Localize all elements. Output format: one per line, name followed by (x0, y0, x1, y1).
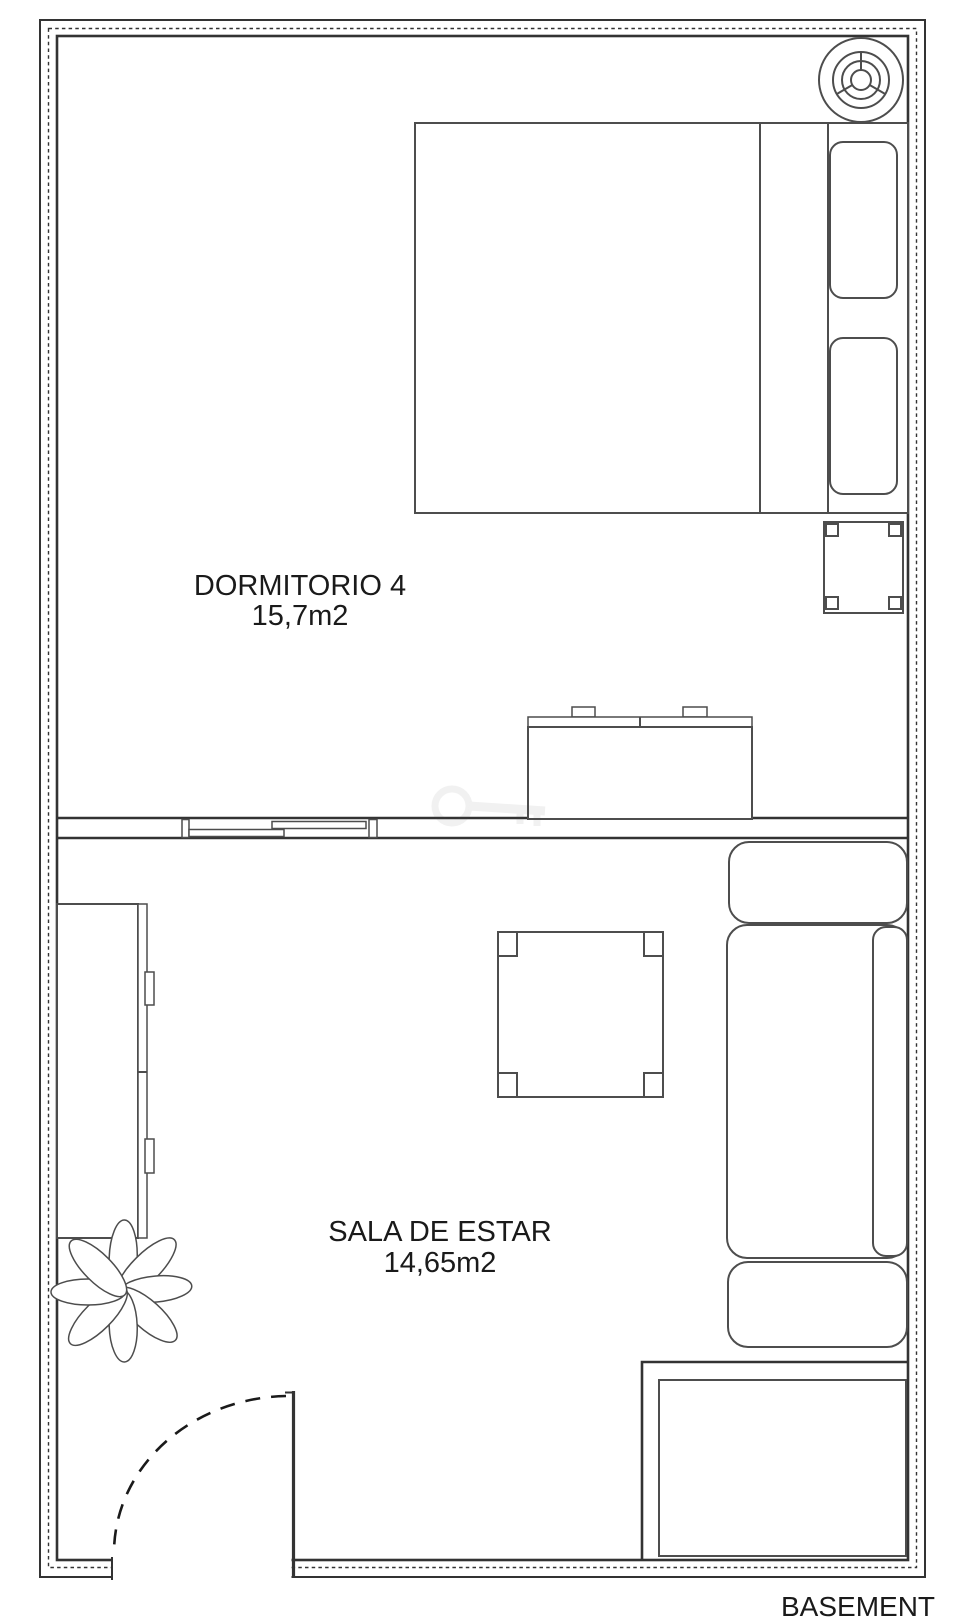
nightstand-leg (889, 597, 901, 609)
coffee-table-leg (644, 932, 663, 956)
coffee-table-leg (498, 932, 517, 956)
sideboard-handle (145, 972, 154, 1005)
floorplan-page: DORMITORIO 4 15,7m2 (0, 0, 953, 1623)
nightstand-leg (889, 524, 901, 536)
sliding-door (182, 820, 377, 838)
bed-pillow-bottom (830, 338, 897, 494)
dresser-body (528, 727, 752, 819)
door-swing-arc (114, 1396, 286, 1553)
coffee-table-leg (498, 1073, 517, 1097)
living-room-area-label: 14,65m2 (384, 1247, 497, 1279)
bedroom-name-label: DORMITORIO 4 (194, 570, 406, 602)
coffee-table-leg (644, 1073, 663, 1097)
sideboard-handle (145, 1139, 154, 1173)
double-bed (415, 123, 908, 513)
dresser (528, 707, 752, 819)
sliding-door-panel-upper (272, 822, 366, 829)
dividing-wall (57, 818, 908, 838)
nightstand (824, 522, 903, 613)
sliding-door-right-jamb (369, 820, 377, 838)
nightstand-leg (826, 597, 838, 609)
plant-petals (51, 1220, 193, 1363)
closet-inner-outline (659, 1380, 906, 1556)
coffee-table-top (498, 932, 663, 1097)
sofa-armrest-top (729, 842, 907, 923)
bedroom-area-label: 15,7m2 (252, 600, 349, 632)
living-room-sala-de-estar: SALA DE ESTAR 14,65m2 (51, 842, 908, 1583)
sliding-door-left-jamb (182, 820, 189, 838)
floor-caption: BASEMENT (781, 1591, 935, 1622)
closet-wall (642, 1362, 908, 1560)
ceiling-fan-icon (819, 38, 903, 122)
floorplan-canvas: DORMITORIO 4 15,7m2 (0, 0, 953, 1623)
entry-door (112, 1391, 294, 1583)
sofa-armrest-bottom (728, 1262, 907, 1347)
tv-sideboard (57, 904, 154, 1238)
storage-closet (642, 1362, 908, 1560)
dresser-handle (683, 707, 707, 717)
door-opening (113, 1551, 292, 1583)
sofa-backrest (873, 927, 907, 1256)
bed-pillow-top (830, 142, 897, 298)
living-room-name-label: SALA DE ESTAR (328, 1216, 552, 1248)
bedroom-dormitorio-4: DORMITORIO 4 15,7m2 (194, 38, 908, 826)
plant (51, 1220, 193, 1363)
sliding-door-panel-lower (189, 830, 284, 837)
coffee-table (498, 932, 663, 1097)
nightstand-leg (826, 524, 838, 536)
dresser-handle (572, 707, 595, 717)
sofa (727, 842, 907, 1347)
sideboard-body (57, 904, 138, 1238)
